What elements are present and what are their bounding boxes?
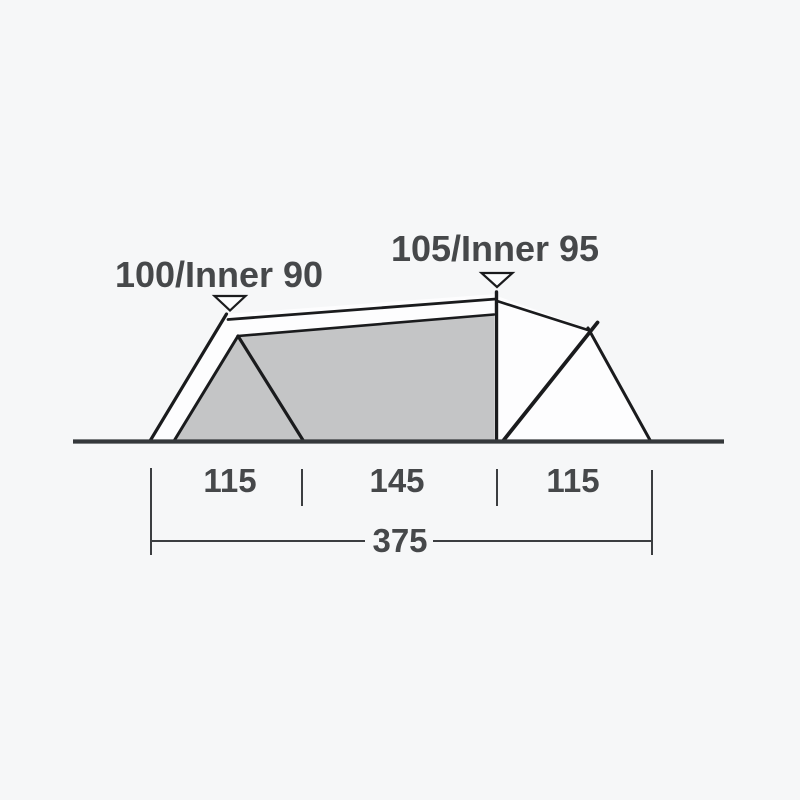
total-width-label: 375	[372, 524, 427, 557]
main-peak-height-label: 105/Inner 95	[391, 231, 599, 267]
triangle-down-icon	[215, 296, 246, 311]
front-peak-height-label: 100/Inner 90	[115, 257, 323, 293]
front-section-width-label: 115	[203, 464, 256, 497]
middle-section-width-label: 145	[369, 464, 424, 497]
tent-diagram-drawing	[0, 0, 800, 800]
tent-dimension-diagram: 100/Inner 90 105/Inner 95 115 145 115 37…	[0, 0, 800, 800]
triangle-down-icon	[482, 273, 513, 287]
rear-section-width-label: 115	[546, 464, 599, 497]
